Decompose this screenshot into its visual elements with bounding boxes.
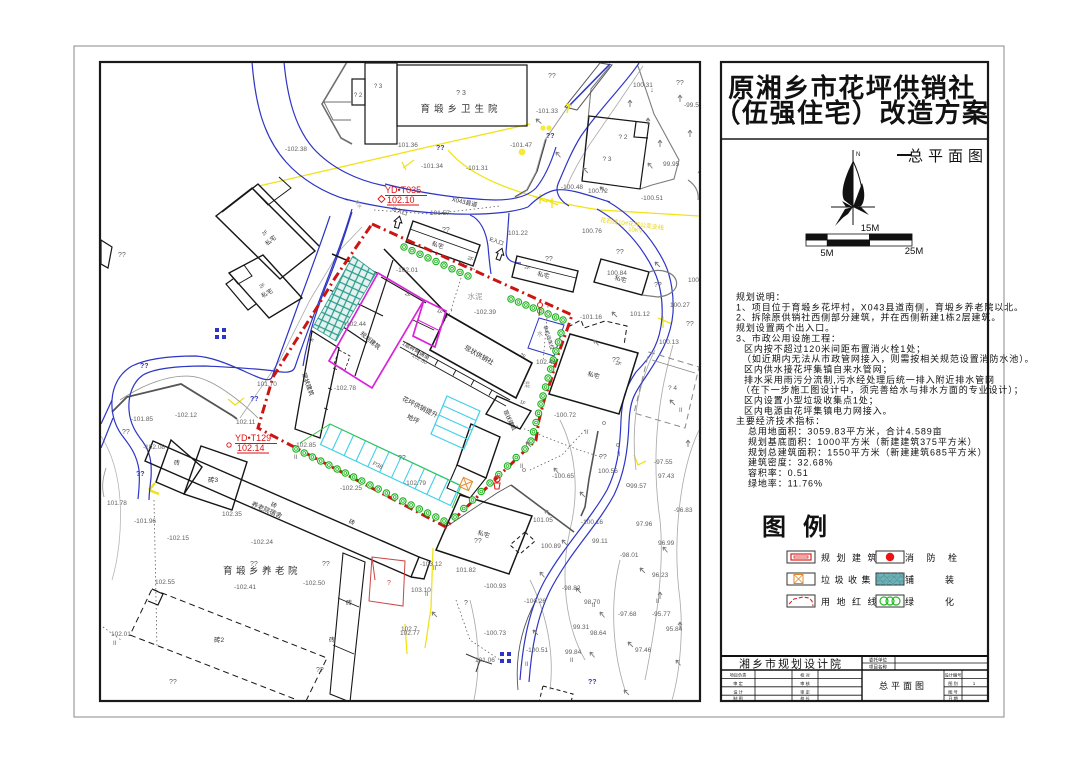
svg-text:混: 混 — [524, 381, 530, 389]
svg-text:II: II — [592, 603, 596, 609]
svg-text:区内设置小型垃圾收集点1处；: 区内设置小型垃圾收集点1处； — [744, 395, 879, 406]
svg-text:图例: 图例 — [762, 514, 844, 541]
svg-text:-101.31: -101.31 — [466, 165, 488, 172]
svg-text:??: ?? — [654, 282, 662, 289]
svg-text:审 定: 审 定 — [800, 688, 810, 695]
svg-text:102.01: 102.01 — [111, 631, 131, 638]
svg-text:II: II — [294, 455, 298, 461]
svg-text:-101.47: -101.47 — [510, 142, 532, 149]
svg-text:区内按不超过120米间距布置消火栓1处；: 区内按不超过120米间距布置消火栓1处； — [744, 343, 926, 354]
svg-text:水: 水 — [537, 330, 543, 338]
svg-text:101.57: 101.57 — [430, 210, 450, 217]
svg-text:101.70: 101.70 — [257, 381, 277, 388]
svg-text:??: ?? — [140, 363, 149, 370]
svg-text:5M: 5M — [820, 248, 833, 259]
svg-text:101.82: 101.82 — [456, 567, 476, 574]
svg-text:100.13: 100.13 — [659, 339, 679, 346]
svg-text:校 对: 校 对 — [800, 672, 810, 679]
svg-text:? 3: ? 3 — [456, 90, 466, 97]
svg-text:-102.25: -102.25 — [340, 485, 362, 492]
svg-text:-101.85: -101.85 — [131, 416, 153, 423]
svg-text:1、项目位于育塅乡花坪村，X043县道南侧，育塅乡养老院以北: 1、项目位于育塅乡花坪村，X043县道南侧，育塅乡养老院以北。 — [736, 301, 1024, 312]
svg-text:校 长: 校 长 — [800, 695, 810, 702]
svg-text:-102.79: -102.79 — [404, 480, 426, 487]
svg-text:-101.33: -101.33 — [536, 108, 558, 115]
svg-text:-102.12: -102.12 — [175, 412, 197, 419]
svg-text:-100.26: -100.26 — [524, 598, 546, 605]
svg-text:? 3: ? 3 — [602, 156, 611, 163]
svg-text:-101.34: -101.34 — [421, 163, 443, 170]
svg-text:??: ?? — [588, 679, 597, 686]
svg-text:??: ?? — [136, 471, 145, 478]
svg-text:消防栓: 消防栓 — [905, 552, 970, 563]
svg-text:??: ?? — [474, 538, 482, 545]
svg-text:99.95: 99.95 — [663, 161, 680, 168]
svg-text:97.43: 97.43 — [658, 473, 675, 480]
svg-text:（如近期内无法从市政管网接入，则需按相关规范设置消防水池）。: （如近期内无法从市政管网接入，则需按相关规范设置消防水池）。 — [742, 353, 1035, 364]
svg-text:-101.96: -101.96 — [134, 518, 156, 525]
svg-text:??: ?? — [436, 145, 445, 152]
svg-text:99.84: 99.84 — [565, 649, 582, 656]
svg-text:101.22: 101.22 — [508, 230, 528, 237]
svg-text:-96.83: -96.83 — [674, 507, 693, 514]
svg-text:-100.51: -100.51 — [526, 647, 548, 654]
svg-text:湘乡市规划设计院: 湘乡市规划设计院 — [739, 657, 843, 671]
svg-text:100.89: 100.89 — [541, 543, 561, 550]
svg-text:设 计: 设 计 — [733, 688, 743, 695]
svg-text:102.55: 102.55 — [155, 579, 175, 586]
svg-text:砖: 砖 — [346, 599, 352, 607]
svg-text:砖: 砖 — [174, 459, 180, 467]
svg-text:96.99: 96.99 — [658, 540, 675, 547]
svg-text:总平面图: 总平面图 — [879, 680, 927, 691]
svg-text:101.12: 101.12 — [630, 311, 650, 318]
svg-text:II: II — [113, 641, 117, 647]
svg-text:? 3: ? 3 — [374, 84, 383, 90]
svg-text:排水采用雨污分流制,污水经处理后统一排入附近排水管网: 排水采用雨污分流制,污水经处理后统一排入附近排水管网 — [744, 374, 995, 385]
svg-text:??: ?? — [322, 561, 330, 568]
svg-text:-102.38: -102.38 — [285, 146, 307, 153]
svg-text:-100.48: -100.48 — [561, 184, 583, 191]
svg-text:102.48: 102.48 — [536, 359, 556, 366]
svg-text:95.84: 95.84 — [666, 626, 683, 633]
svg-text:II: II — [525, 662, 529, 668]
svg-text:102.7: 102.7 — [401, 626, 418, 633]
svg-text:??: ?? — [686, 321, 694, 328]
svg-text:99.11: 99.11 — [592, 538, 608, 545]
svg-text:II: II — [520, 464, 524, 470]
svg-text:-100.93: -100.93 — [484, 583, 506, 590]
svg-text:审 定: 审 定 — [733, 680, 743, 687]
svg-text:-98.01: -98.01 — [620, 552, 639, 559]
svg-text:育塅乡养老院: 育塅乡养老院 — [223, 565, 301, 577]
svg-text:规划说明：: 规划说明： — [736, 291, 786, 302]
svg-text:? 2: ? 2 — [354, 93, 363, 99]
svg-text:??: ?? — [398, 455, 406, 462]
svg-text:区内电源由花坪集镇电力网接入。: 区内电源由花坪集镇电力网接入。 — [744, 405, 893, 416]
svg-text:??: ?? — [548, 73, 556, 80]
svg-text:-100.16: -100.16 — [581, 519, 603, 526]
svg-text:99.31: 99.31 — [573, 624, 590, 631]
svg-text:-102.24: -102.24 — [251, 539, 273, 546]
svg-text:项目负责: 项目负责 — [730, 672, 747, 679]
svg-text:II: II — [433, 566, 437, 572]
svg-text:97.46: 97.46 — [635, 647, 652, 654]
svg-text:主要经济技术指标：: 主要经济技术指标： — [736, 415, 825, 426]
svg-text:砖2: 砖2 — [214, 635, 225, 644]
svg-text:总平面图: 总平面图 — [908, 148, 988, 165]
svg-text:102.10: 102.10 — [387, 195, 415, 205]
svg-text:? 4: ? 4 — [668, 385, 677, 392]
svg-text:15M: 15M — [861, 223, 880, 234]
svg-text:100.72: 100.72 — [588, 188, 608, 195]
svg-text:-102.39: -102.39 — [474, 309, 496, 316]
svg-text:规划总建筑面积：1550平方米（新建建筑685平方米）: 规划总建筑面积：1550平方米（新建建筑685平方米） — [748, 446, 987, 457]
svg-text:区内供水接花坪集镇自来水管网；: 区内供水接花坪集镇自来水管网； — [744, 363, 893, 374]
svg-text:-102.85: -102.85 — [294, 442, 316, 449]
svg-text:-101.16: -101.16 — [580, 314, 602, 321]
svg-text:设计编号: 设计编号 — [945, 672, 962, 679]
svg-text:2、拆除原供销社西侧部分建筑，并在西侧新建1栋2层建筑。: 2、拆除原供销社西侧部分建筑，并在西侧新建1栋2层建筑。 — [736, 312, 1001, 323]
svg-text:审 核: 审 核 — [800, 680, 810, 687]
svg-text:? 2: ? 2 — [618, 134, 627, 141]
svg-text:-100.73: -100.73 — [484, 630, 506, 637]
svg-text:总用地面积：3059.83平方米，合计4.589亩: 总用地面积：3059.83平方米，合计4.589亩 — [748, 426, 943, 437]
svg-text:??: ?? — [169, 679, 177, 686]
svg-text:-102.41: -102.41 — [234, 584, 256, 591]
svg-text:??: ?? — [546, 133, 555, 140]
svg-text:项目名称: 项目名称 — [869, 664, 887, 671]
svg-text:??: ?? — [599, 454, 607, 461]
svg-text:-102.08: -102.08 — [143, 444, 165, 451]
svg-text:97.96: 97.96 — [636, 521, 653, 528]
svg-text:101.36: 101.36 — [398, 142, 418, 149]
svg-text:??: ?? — [250, 396, 259, 403]
svg-text:-102.01: -102.01 — [396, 267, 418, 274]
svg-text:绿地率：11.76%: 绿地率：11.76% — [748, 477, 823, 488]
svg-text:铺装: 铺装 — [905, 574, 985, 585]
svg-text:-100.65: -100.65 — [552, 473, 574, 480]
svg-text:??: ?? — [316, 667, 324, 674]
svg-text:101.78: 101.78 — [107, 500, 127, 507]
svg-text:委托单位: 委托单位 — [869, 657, 887, 664]
svg-text:II: II — [585, 430, 589, 436]
svg-text:100.76: 100.76 — [582, 228, 602, 235]
svg-text:YD•T129: YD•T129 — [235, 433, 271, 443]
svg-text:-95.77: -95.77 — [652, 611, 671, 618]
svg-text:规划设置两个出入口。: 规划设置两个出入口。 — [736, 322, 835, 333]
svg-text:图 别: 图 别 — [948, 680, 958, 687]
svg-text:（在下一步施工图设计中，须完善给水与排水方面的专业设计）；: （在下一步施工图设计中，须完善给水与排水方面的专业设计）； — [741, 384, 1024, 395]
svg-text:102.35: 102.35 — [222, 511, 242, 518]
svg-text:-103.12: -103.12 — [420, 561, 442, 568]
svg-text:N: N — [856, 152, 860, 158]
svg-text:102.11: 102.11 — [236, 419, 256, 426]
svg-text:育塅乡卫生院: 育塅乡卫生院 — [420, 103, 501, 115]
svg-text:-102.50: -102.50 — [303, 580, 325, 587]
svg-text:??: ?? — [442, 227, 450, 234]
svg-text:100.27: 100.27 — [670, 302, 690, 309]
svg-text:102.14: 102.14 — [237, 443, 265, 453]
svg-text:建筑密度：32.68%: 建筑密度：32.68% — [748, 457, 833, 468]
svg-text:3、市政公用设施工程：: 3、市政公用设施工程： — [736, 332, 841, 343]
svg-text:-102.44: -102.44 — [344, 321, 366, 328]
svg-text:II: II — [570, 658, 574, 664]
svg-text:??: ?? — [676, 80, 684, 87]
svg-text:-102.78: -102.78 — [334, 385, 356, 392]
svg-text:II: II — [617, 452, 621, 458]
svg-text:98.64: 98.64 — [590, 630, 607, 637]
svg-text:规划基底面积：1000平方米（新建建筑375平方米）: 规划基底面积：1000平方米（新建建筑375平方米） — [748, 436, 977, 447]
svg-text:-98.82: -98.82 — [562, 585, 581, 592]
svg-text:101.05: 101.05 — [533, 517, 553, 524]
svg-text:25M: 25M — [905, 246, 924, 257]
svg-text:水泥: 水泥 — [468, 291, 483, 301]
svg-text:-97.68: -97.68 — [618, 611, 637, 618]
svg-text:101.06: 101.06 — [475, 657, 495, 664]
svg-text:YD•T035: YD•T035 — [385, 185, 421, 195]
svg-text:-99.57: -99.57 — [628, 483, 647, 490]
svg-text:??: ?? — [118, 252, 126, 259]
svg-text:?: ? — [387, 580, 391, 587]
svg-text:II: II — [425, 592, 429, 598]
svg-text:96.23: 96.23 — [652, 572, 669, 579]
svg-text:（伍强住宅）改造方案: （伍强住宅）改造方案 — [714, 98, 989, 128]
svg-text:??: ?? — [545, 256, 553, 263]
svg-text:II: II — [656, 599, 660, 605]
svg-text:-100.51: -100.51 — [641, 195, 663, 202]
svg-text:规划建筑: 规划建筑 — [821, 552, 883, 563]
svg-text:绿化: 绿化 — [905, 596, 985, 607]
svg-text:制 图: 制 图 — [733, 695, 743, 702]
svg-text:??: ?? — [122, 429, 130, 436]
svg-text:容积率：0.51: 容积率：0.51 — [748, 467, 809, 478]
svg-text:↓: ↓ — [650, 87, 654, 94]
svg-text:??: ?? — [616, 249, 624, 256]
svg-text:?: ? — [464, 600, 468, 607]
svg-text:-97.55: -97.55 — [654, 459, 673, 466]
svg-text:-102.15: -102.15 — [167, 535, 189, 542]
svg-text:II: II — [679, 408, 683, 414]
svg-text:-100.72: -100.72 — [554, 412, 576, 419]
svg-text:100.56: 100.56 — [598, 468, 618, 475]
svg-text:砖: 砖 — [329, 636, 335, 644]
svg-text:用地红线: 用地红线 — [821, 596, 883, 607]
svg-text:砖3: 砖3 — [208, 475, 219, 484]
